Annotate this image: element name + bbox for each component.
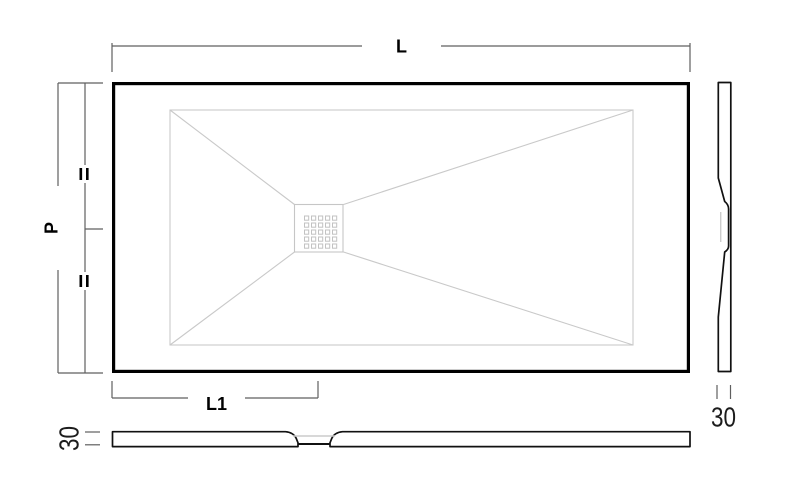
top-view xyxy=(114,84,689,372)
depth-label: P xyxy=(42,222,62,234)
slope-line-top-left xyxy=(170,110,295,205)
basin-edge xyxy=(170,110,633,345)
dimension-drain-offset: L1 xyxy=(112,381,318,414)
section-left-block xyxy=(113,432,299,447)
drawing-svg: L P = = L1 30 xyxy=(0,0,797,481)
slope-line-bottom-right xyxy=(344,252,634,345)
equal-mark-lower: = xyxy=(72,274,99,288)
length-label: L xyxy=(396,37,407,57)
slope-line-bottom-left xyxy=(170,252,295,345)
thickness-label-side: 30 xyxy=(711,402,736,433)
section-right-block xyxy=(330,432,690,447)
tray-outer-rim xyxy=(114,84,689,372)
bottom-thickness-dimension: 30 xyxy=(54,426,101,451)
equal-mark-upper: = xyxy=(72,167,99,181)
dimension-depth: P = = xyxy=(42,83,104,373)
thickness-label-bottom: 30 xyxy=(54,426,85,451)
dimension-length: L xyxy=(112,37,690,73)
side-section-view xyxy=(718,83,731,372)
shower-tray-technical-drawing: L P = = L1 30 xyxy=(0,0,797,481)
side-thickness-dimension: 30 xyxy=(711,385,736,433)
drain-offset-label: L1 xyxy=(206,394,227,414)
slope-line-top-right xyxy=(344,110,634,205)
bottom-section-view xyxy=(113,432,691,447)
